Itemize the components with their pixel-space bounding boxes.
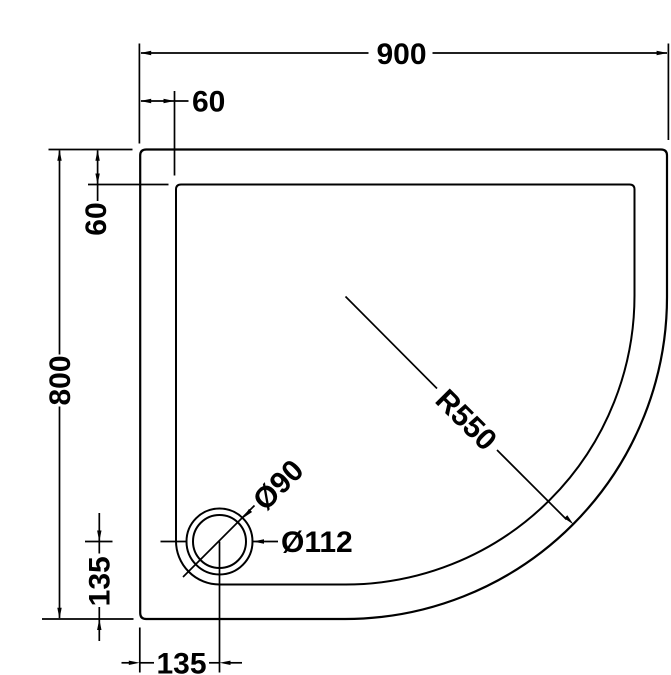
svg-text:135: 135 xyxy=(156,648,206,675)
svg-text:900: 900 xyxy=(376,38,426,71)
svg-text:60: 60 xyxy=(80,202,113,235)
svg-text:60: 60 xyxy=(192,86,225,119)
svg-text:Ø112: Ø112 xyxy=(281,526,353,559)
svg-text:800: 800 xyxy=(44,355,77,405)
svg-text:135: 135 xyxy=(83,556,116,606)
